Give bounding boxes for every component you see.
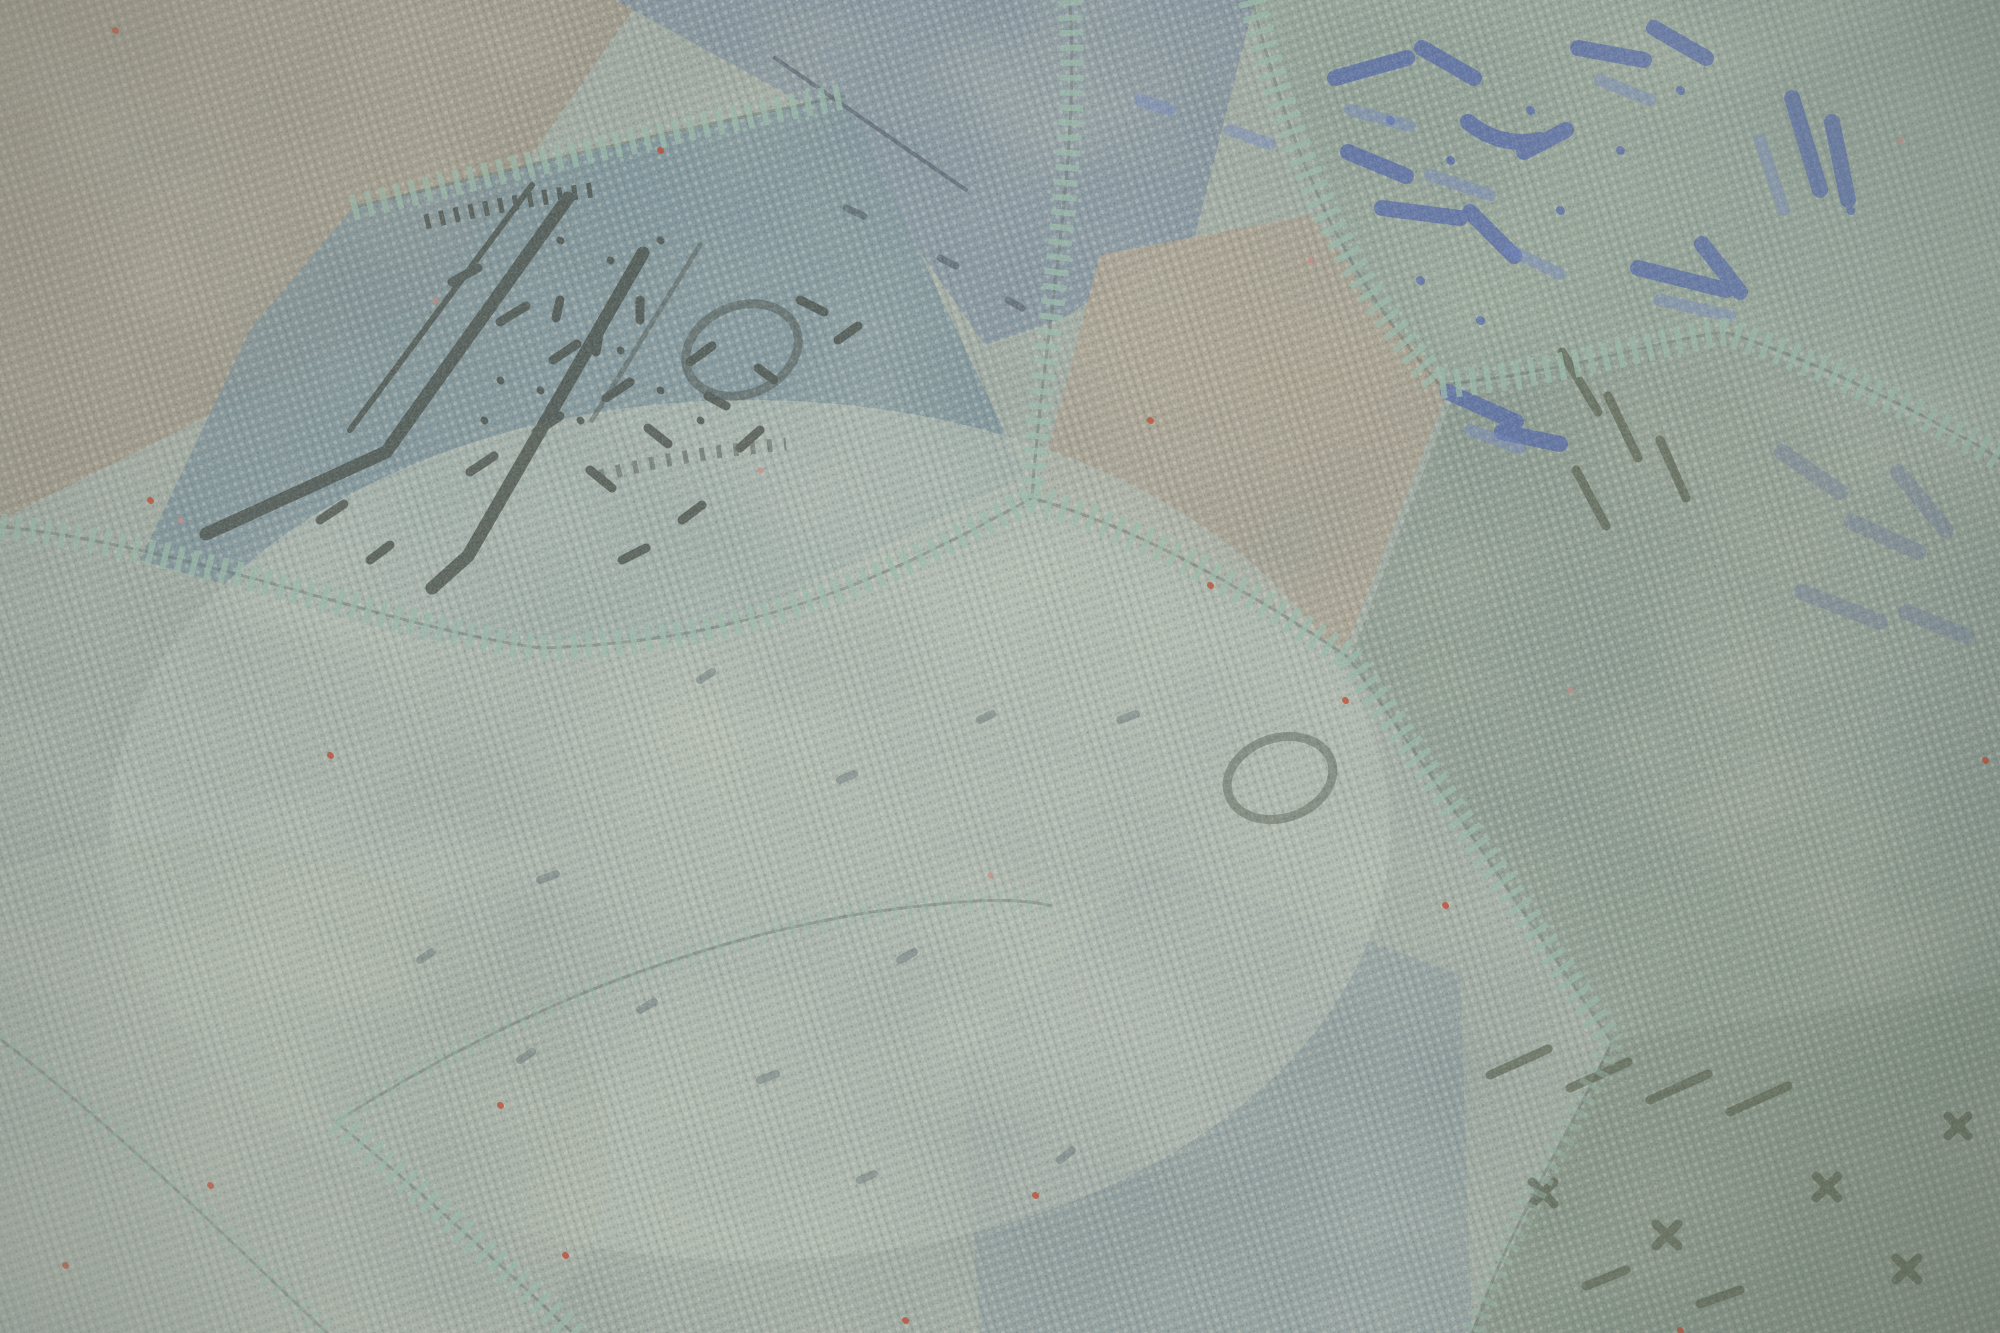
vignette — [0, 0, 2000, 1333]
rug-photo — [0, 0, 2000, 1333]
rug-photo-stage — [0, 0, 2000, 1333]
